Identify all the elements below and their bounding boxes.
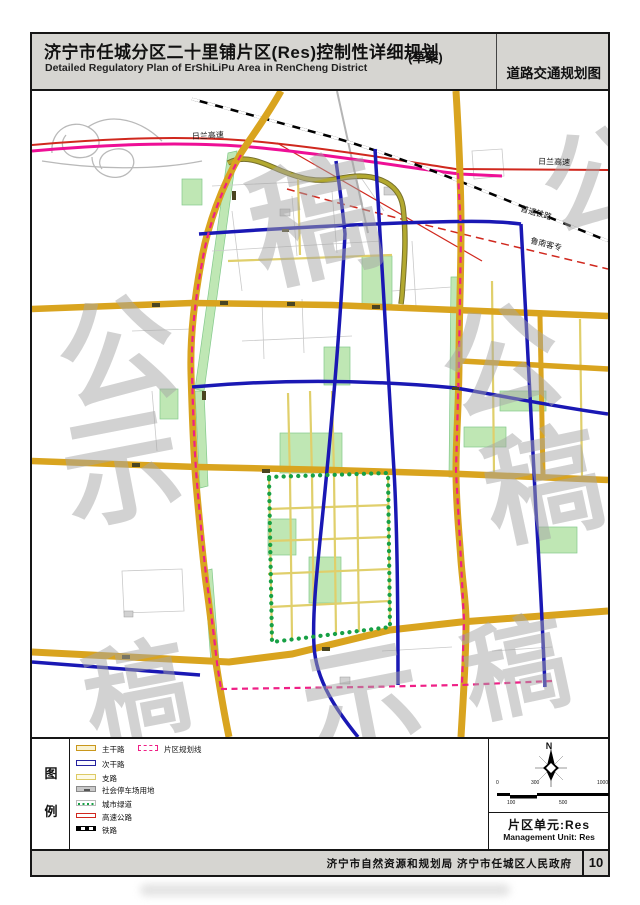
legend-band: 图 例 主干路 次干路 支路 社会停车场用地 [32,737,608,849]
unit-label-cn: 片区单元:Res [489,816,609,833]
page-number-box: 10 [582,851,608,875]
watermark-char: 示 [52,394,193,546]
greenway-swatch [76,800,96,806]
footer-bar: 济宁市自然资源和规划局 济宁市任城区人民政府 10 [32,849,608,875]
legend-title-char-2: 例 [32,801,70,820]
scale-number: 0 [496,780,499,786]
legend-item-label: 次干路 [102,759,125,770]
legend-item-label: 城市绿道 [102,799,132,810]
legend-item-label: 高速公路 [102,812,132,823]
map-info-box: N 0 300 1000 [488,739,608,849]
expressway-label-east: 日兰高速 [538,156,570,167]
plan-title-cn: 济宁市任城分区二十里铺片区(Res)控制性详细规划 [44,38,439,63]
legend-item-label: 支路 [102,773,117,784]
plan-sheet-frame: 济宁市任城分区二十里铺片区(Res)控制性详细规划 (草案) Detailed … [30,32,610,877]
legend-item-label: 铁路 [102,825,117,836]
unit-label-en: Management Unit: Res [489,832,609,842]
branch-road-swatch [76,774,96,780]
draft-tag: (草案) [408,47,443,66]
watermark-char: 稿 [472,411,608,565]
map-type-title: 道路交通规划图 [507,62,602,82]
road-traffic-plan-map: 稿 公 公 示 公 稿 示 稿 稿 日兰高速 日兰高速 普通铁路 鲁南客专 [32,91,608,737]
main-road-swatch [76,745,96,751]
parking-swatch [76,786,96,792]
expressway-swatch [76,813,96,818]
legend-item-label: 社会停车场用地 [102,785,155,796]
agency-names: 济宁市自然资源和规划局 济宁市任城区人民政府 [327,856,572,871]
scale-number: 300 [531,780,539,786]
legend-item-label: 片区规划线 [164,744,202,755]
scan-smudge [140,884,510,896]
legend-item-label: 主干路 [102,744,125,755]
scale-number: 500 [559,800,567,806]
scale-number: 1000 [597,780,608,786]
title-bar: 济宁市任城分区二十里铺片区(Res)控制性详细规划 (草案) Detailed … [32,34,608,91]
map-canvas: 稿 公 公 示 公 稿 示 稿 稿 日兰高速 日兰高速 普通铁路 鲁南客专 [32,91,608,737]
plan-title-en: Detailed Regulatory Plan of ErShiLiPu Ar… [45,62,367,74]
plan-sheet-page: 济宁市任城分区二十里铺片区(Res)控制性详细规划 (草案) Detailed … [0,0,640,905]
page-number: 10 [589,855,603,870]
parking-swatch-mark [84,789,90,791]
railway-swatch [76,826,96,831]
district-boundary-swatch [138,745,158,751]
expressway-label-west: 日兰高速 [192,129,224,141]
scale-number: 100 [507,800,515,806]
legend-title-box: 图 例 [32,739,70,849]
greenway-dots-icon [78,803,94,806]
watermark-char: 稿 [452,602,579,737]
secondary-road-swatch [76,760,96,766]
info-box-divider [489,812,609,813]
legend-title-char-1: 图 [32,763,70,782]
watermark-char: 公 [531,111,608,254]
watermark-char: 稿 [74,627,199,737]
title-divider [496,34,497,89]
